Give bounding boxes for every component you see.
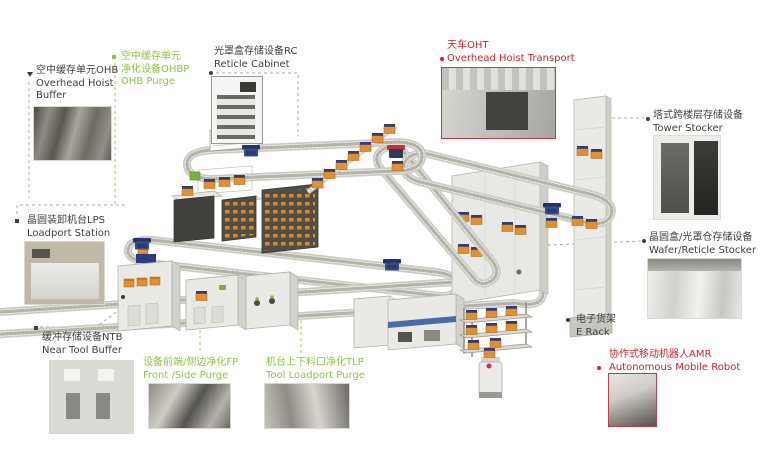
amr-bullet <box>597 366 601 370</box>
ntb-photo <box>50 361 133 433</box>
wafer-reticle-stocker-photo <box>648 259 741 318</box>
fp-label: 设备前端/侧边净化FP Front /Side Purge <box>143 357 255 382</box>
ohb-label-en: Overhead Hoist Buffer <box>36 78 124 103</box>
wrs-label-en: Wafer/Reticle Stocker <box>649 245 765 258</box>
rc-label: 光罩盒存储设备RC Reticle Cabinet <box>214 46 324 71</box>
rc-photo <box>212 77 262 143</box>
ntb-bullet <box>34 326 38 330</box>
oht-bullet <box>440 57 444 61</box>
oht-vehicle <box>133 238 151 250</box>
ohb-label: 空中缓存单元OHB Overhead Hoist Buffer <box>36 65 124 103</box>
process-tools <box>118 246 464 350</box>
lps-label: 晶圆装卸机台LPS Loadport Station <box>27 215 127 240</box>
e-rack <box>460 302 532 357</box>
tower-bullet <box>646 117 650 121</box>
lps-photo <box>25 242 104 304</box>
amr-label-zh: 协作式移动机器人AMR <box>609 349 765 362</box>
amhs-product-map: 空中缓存单元OHB Overhead Hoist Buffer 空中缓存单元 净… <box>0 0 766 458</box>
erack-label-zh: 电子货架 <box>576 314 656 327</box>
purge-unit-green <box>190 172 200 180</box>
oht-label-zh: 天车OHT <box>447 40 607 53</box>
ohbp-label: 空中缓存单元 净化设备OHBP OHB Purge <box>121 51 207 89</box>
fp-photo <box>149 384 230 428</box>
oht-label: 天车OHT Overhead Hoist Transport <box>447 40 607 65</box>
ohb-label-zh: 空中缓存单元OHB <box>36 65 124 78</box>
ohb-photo <box>34 107 111 160</box>
fp-label-en: Front /Side Purge <box>143 370 255 383</box>
tlp-label: 机台上下料口净化TLP Tool Loadport Purge <box>266 357 388 382</box>
oht-label-en: Overhead Hoist Transport <box>447 53 607 66</box>
fp-label-zh: 设备前端/侧边净化FP <box>143 357 255 370</box>
rc-label-zh: 光罩盒存储设备RC <box>214 46 324 59</box>
lps-leader-line <box>17 205 128 214</box>
erack-label-en: E Rack <box>576 327 656 340</box>
amr-robot <box>479 348 502 398</box>
ohbp-label-zh1: 空中缓存单元 <box>121 51 207 64</box>
oht-photo <box>442 68 555 138</box>
lps-label-en: Loadport Station <box>27 228 127 241</box>
ohbp-label-en: OHB Purge <box>121 76 207 89</box>
ntb-label: 缓冲存储设备NTB Near Tool Buffer <box>42 332 142 357</box>
lps-label-zh: 晶圆装卸机台LPS <box>27 215 127 228</box>
rc-bullet <box>209 71 213 75</box>
amr-label-en: Autonomous Mobile Robot <box>609 362 765 375</box>
tlp-label-en: Tool Loadport Purge <box>266 370 388 383</box>
ntb-label-en: Near Tool Buffer <box>42 345 142 358</box>
tower-label-zh: 塔式跨楼层存储设备 <box>653 110 763 123</box>
oht-vehicle <box>543 203 561 215</box>
erack-label: 电子货架 E Rack <box>576 314 656 339</box>
ohb-bullet <box>27 72 33 77</box>
tower-label: 塔式跨楼层存储设备 Tower Stocker <box>653 110 763 135</box>
oht-vehicle <box>242 145 260 157</box>
tower-label-en: Tower Stocker <box>653 123 763 136</box>
wrs-label: 晶圆盒/光罩仓存储设备 Wafer/Reticle Stocker <box>649 232 765 257</box>
wrs-label-zh: 晶圆盒/光罩仓存储设备 <box>649 232 765 245</box>
striped-tool <box>388 294 464 350</box>
amr-arm <box>487 364 492 369</box>
ntb-label-zh: 缓冲存储设备NTB <box>42 332 142 345</box>
efp-tool <box>186 275 246 330</box>
tlp-label-zh: 机台上下料口净化TLP <box>266 357 388 370</box>
rc-label-en: Reticle Cabinet <box>214 59 324 72</box>
oht-vehicle <box>383 259 401 271</box>
amr-label: 协作式移动机器人AMR Autonomous Mobile Robot <box>609 349 765 374</box>
tlp-photo <box>265 384 349 428</box>
ohbp-label-zh2: 净化设备OHBP <box>121 64 207 77</box>
lps-bullet <box>15 219 19 223</box>
wrs-bullet <box>642 239 646 243</box>
overhead-hoist-buffer-rail <box>308 124 396 192</box>
ohb-purge-units <box>190 166 252 194</box>
amr-photo <box>609 374 656 426</box>
oht-vehicle-red <box>387 145 405 158</box>
tlp-tool <box>246 272 298 330</box>
erack-bullet <box>566 318 570 322</box>
tower-stocker-photo <box>654 136 720 219</box>
ohbp-bullet <box>112 55 116 59</box>
